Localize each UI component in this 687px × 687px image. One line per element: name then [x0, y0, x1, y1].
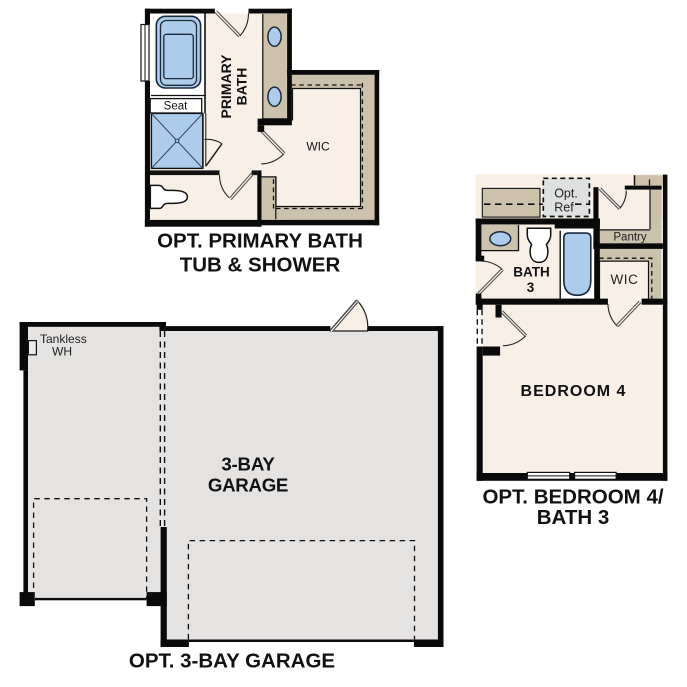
svg-text:3-BAY: 3-BAY: [221, 454, 275, 475]
svg-text:WIC: WIC: [306, 140, 330, 154]
svg-text:BATH 3: BATH 3: [537, 506, 610, 529]
svg-text:3: 3: [527, 280, 535, 295]
svg-text:Ref: Ref: [554, 201, 574, 215]
svg-text:Opt.: Opt.: [554, 187, 578, 201]
svg-text:Seat: Seat: [164, 100, 188, 112]
svg-text:OPT. PRIMARY BATH: OPT. PRIMARY BATH: [157, 230, 363, 253]
svg-text:GARAGE: GARAGE: [208, 475, 288, 496]
svg-text:TUB & SHOWER: TUB & SHOWER: [180, 254, 341, 277]
svg-text:BEDROOM 4: BEDROOM 4: [521, 383, 627, 400]
svg-text:WIC: WIC: [610, 272, 638, 287]
svg-text:WH: WH: [52, 345, 72, 359]
svg-text:Pantry: Pantry: [613, 232, 646, 244]
svg-text:BATH: BATH: [513, 265, 550, 280]
svg-text:OPT. 3-BAY GARAGE: OPT. 3-BAY GARAGE: [129, 650, 335, 673]
